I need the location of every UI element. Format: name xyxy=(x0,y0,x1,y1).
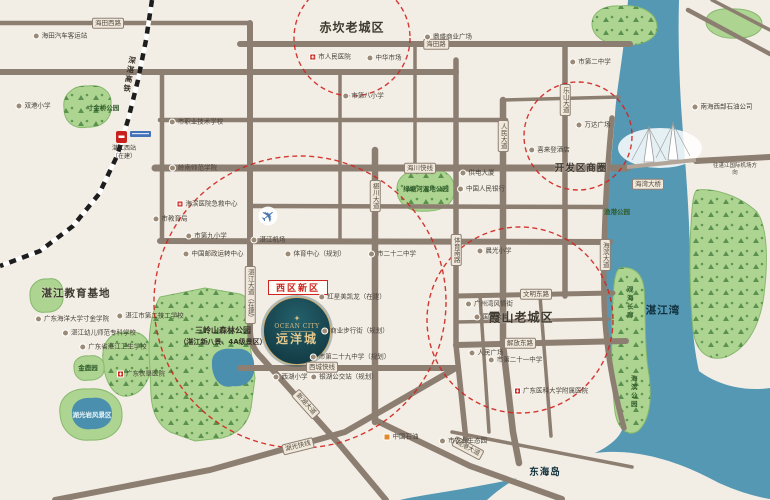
poi-label: 广东医科大学附属医院 xyxy=(514,388,588,395)
poi-icon xyxy=(439,438,446,445)
poi-label: 市第八小学 xyxy=(342,93,384,100)
hosp-icon xyxy=(514,388,521,395)
poi-icon xyxy=(16,103,23,110)
poi-icon xyxy=(62,330,69,337)
gas-icon xyxy=(384,434,391,441)
poi-label: 岭南师范学院 xyxy=(169,165,217,172)
poi-label: 商业步行街（规划） xyxy=(321,328,389,335)
road-label: 西城快线 xyxy=(306,362,338,373)
poi-label: 湛江幼儿师范专科学校 xyxy=(62,330,136,337)
poi-icon xyxy=(318,294,325,301)
road-label: 椹川大道 xyxy=(370,180,381,212)
poi-label: 南海西部石油公司 xyxy=(692,104,753,111)
poi-icon xyxy=(321,328,328,335)
hosp-icon xyxy=(309,54,316,61)
poi-label: 广东省湛江卫生学校 xyxy=(79,344,147,351)
poi-icon xyxy=(692,104,699,111)
logo-brand-cn: 远洋城 xyxy=(276,333,318,346)
poi-label: 广州湾风情街 xyxy=(465,301,513,308)
poi-icon xyxy=(342,93,349,100)
road-label: 文明东路 xyxy=(520,289,552,300)
railway-name-label: 深湛高铁 xyxy=(121,55,138,94)
poi-icon xyxy=(465,301,472,308)
poi-icon xyxy=(33,33,40,40)
road-label: 海滨大道 xyxy=(600,239,611,271)
road-label: 体育南路 xyxy=(451,234,462,266)
poi-label: 中华市场 xyxy=(367,55,402,62)
poi-label: 中国邮政运转中心 xyxy=(183,251,244,258)
poi-label: 晨光小学 xyxy=(477,248,512,255)
poi-label: 市二十二中学 xyxy=(368,251,416,258)
road-label: 湖光快线 xyxy=(281,437,315,455)
poi-label: 中国人民银行 xyxy=(457,186,505,193)
poi-icon xyxy=(469,350,476,357)
road-label: 海川快线 xyxy=(404,163,436,174)
poi-icon xyxy=(153,216,160,223)
poi-label: 广东海洋大学寸金学院 xyxy=(35,316,109,323)
poi-icon xyxy=(424,34,431,41)
poi-label: 体育中心（规划） xyxy=(285,251,346,258)
poi-label: 市职业技术学校 xyxy=(169,119,224,126)
poi-label: 供电大厦 xyxy=(460,170,495,177)
poi-label: 湛江市第二技工学校 xyxy=(116,313,184,320)
label-layer: 西区新区 ✦ OCEAN CITY 远洋城 三岭山森林公园 （湛江新八景、4A级… xyxy=(0,0,770,500)
district-label: 赤坎老城区 xyxy=(319,19,384,36)
poi-icon xyxy=(79,344,86,351)
poi-icon xyxy=(528,147,535,154)
poi-label: 湖光岩风景区 xyxy=(73,412,112,419)
poi-label: 观海长廊 xyxy=(626,286,633,320)
poi-icon xyxy=(285,251,292,258)
poi-label: 国贸大厦 xyxy=(474,314,509,321)
poi-icon xyxy=(310,354,317,361)
road-label: 海田西路 xyxy=(92,18,124,29)
poi-label: 市人民医院 xyxy=(309,54,351,61)
district-label: 湛江湾 xyxy=(646,303,681,318)
poi-label: 西湖小学 xyxy=(273,374,308,381)
poi-icon xyxy=(368,251,375,258)
poi-label: 市第九小学 xyxy=(185,233,227,240)
poi-icon xyxy=(569,59,576,66)
poi-label: 海滨医院急救中心 xyxy=(177,201,238,208)
district-label: 开发区商圈 xyxy=(555,160,608,174)
poi-label: 鼎盛商业广场 xyxy=(424,34,472,41)
district-label: 湛江教育基地 xyxy=(42,286,111,301)
poi-icon xyxy=(251,237,258,244)
poi-label: 绿塘河湿地公园 xyxy=(403,186,449,193)
poi-icon xyxy=(185,233,192,240)
poi-icon xyxy=(477,248,484,255)
poi-label: 市第二十九中学（规划） xyxy=(310,354,391,361)
poi-label: 中国石油 xyxy=(384,434,419,441)
hosp-icon xyxy=(177,201,184,208)
poi-icon xyxy=(116,313,123,320)
poi-label: 金鹿园 xyxy=(78,365,98,372)
poi-icon xyxy=(576,122,583,129)
poi-icon xyxy=(169,165,176,172)
railway-station-label: 湛江西站 （在建） xyxy=(112,145,136,160)
poi-label: 喜来登酒店 xyxy=(528,147,570,154)
poi-label: 红星美凯龙（在建） xyxy=(318,294,386,301)
poi-label: 市农业生态园 xyxy=(439,438,487,445)
road-label: 乐山大道 xyxy=(560,84,571,116)
road-label: 解放东路 xyxy=(504,338,536,349)
poi-icon xyxy=(460,170,467,177)
poi-icon xyxy=(488,357,495,364)
poi-icon xyxy=(35,316,42,323)
logo-emblem-icon: ✦ xyxy=(294,315,301,323)
poi-label: 万达广场 xyxy=(576,122,611,129)
road-label: 人民大道 xyxy=(498,120,509,152)
poi-label: 海田汽车客运站 xyxy=(33,33,88,40)
poi-label: 湛江机场 xyxy=(251,237,286,244)
road-label: 新湖大道 xyxy=(291,389,320,420)
poi-label: 寸金桥公园 xyxy=(87,105,120,112)
poi-label: 银湖公交站（规划） xyxy=(310,374,378,381)
hosp-icon xyxy=(117,371,124,378)
logo-brand-en: OCEAN CITY xyxy=(274,324,319,330)
poi-icon xyxy=(457,186,464,193)
poi-label: 市第二十一中学 xyxy=(488,357,543,364)
poi-label: 广东农垦医院 xyxy=(117,371,165,378)
poi-icon xyxy=(367,55,374,62)
poi-icon xyxy=(310,374,317,381)
airport-direction-note: 往湛江国际机场方向 xyxy=(712,163,758,177)
poi-icon xyxy=(273,374,280,381)
poi-icon xyxy=(169,119,176,126)
poi-label: 渔港公园 xyxy=(604,209,630,216)
district-label: 东海岛 xyxy=(529,464,561,478)
poi-label: 市第二中学 xyxy=(569,59,611,66)
poi-label: 海滨公园 xyxy=(630,375,637,409)
location-map: ✈ 西区新区 ✦ OCEAN CITY 远洋城 三岭山森林公园 （湛江新八景、4… xyxy=(0,0,770,500)
poi-label: 双港小学 xyxy=(16,103,51,110)
forest-park-label: 三岭山森林公园 （湛江新八景、4A级景区） xyxy=(179,325,266,347)
poi-label: 市教育局 xyxy=(153,216,188,223)
poi-icon xyxy=(474,314,481,321)
road-label: 海湾大桥 xyxy=(632,179,664,190)
poi-icon xyxy=(183,251,190,258)
road-label: 湛江大道（在建） xyxy=(245,266,256,324)
